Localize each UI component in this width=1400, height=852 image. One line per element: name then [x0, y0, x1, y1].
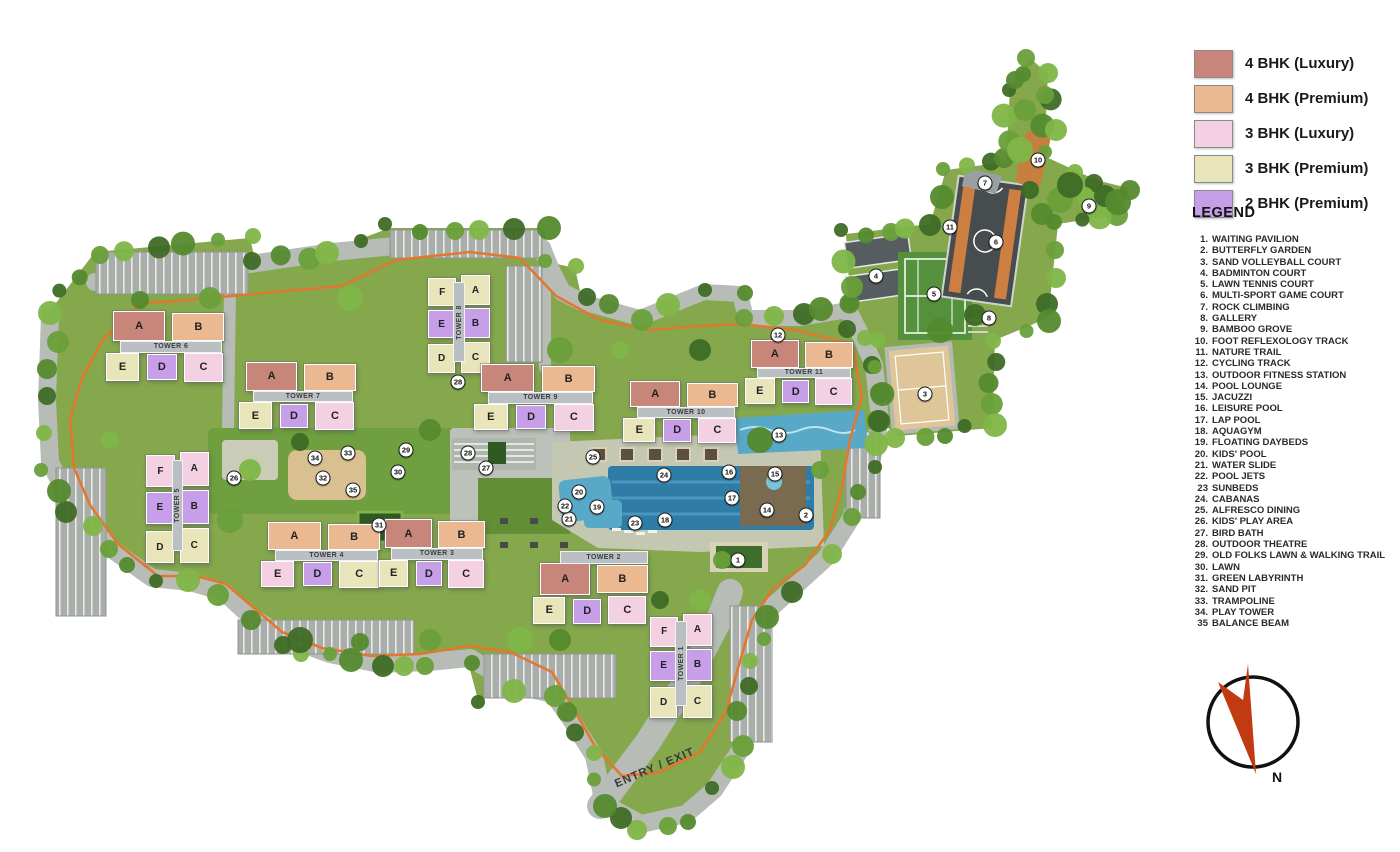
legend-item: 12.CYCLING TRACK	[1188, 358, 1385, 369]
unit-block: D	[573, 599, 601, 624]
tower-tower-9: ABEDCTOWER 9	[481, 364, 598, 430]
unit-block: D	[416, 561, 442, 586]
unit-block: B	[597, 565, 647, 594]
legend-title: LEGEND	[1192, 205, 1255, 221]
legend-swatch-row: 3 BHK (Premium)	[1194, 155, 1368, 182]
tower-name-band: TOWER 11	[757, 368, 851, 379]
unit-block: D	[663, 419, 691, 442]
legend-item: 2.BUTTERFLY GARDEN	[1188, 245, 1385, 256]
unit-block: E	[428, 310, 455, 338]
unit-block: D	[650, 687, 677, 718]
map-marker-27: 27	[479, 461, 494, 476]
unit-block: A	[385, 519, 432, 548]
legend-item: 1.WAITING PAVILION	[1188, 234, 1385, 245]
map-marker-7: 7	[978, 176, 993, 191]
tower-name-band: TOWER 10	[637, 407, 736, 418]
unit-block: E	[261, 561, 294, 587]
map-overlay: ABEDCTOWER 6ABEDCTOWER 7FAEBDCTOWER 8ABE…	[0, 0, 1150, 852]
unit-block: B	[687, 383, 737, 408]
map-marker-14: 14	[760, 503, 775, 518]
unit-block: D	[428, 344, 455, 373]
unit-block: A	[461, 275, 490, 305]
tower-tower-7: ABEDCTOWER 7	[246, 362, 358, 429]
map-marker-15: 15	[768, 467, 783, 482]
legend-item: 32.SAND PIT	[1188, 584, 1385, 595]
unit-block: A	[751, 340, 799, 368]
map-marker-20: 20	[572, 485, 587, 500]
tower-tower-8: FAEBDCTOWER 8	[428, 275, 488, 375]
legend-item: 35BALANCE BEAM	[1188, 618, 1385, 629]
unit-block: C	[184, 353, 224, 382]
swatch-label: 2 BHK (Premium)	[1245, 195, 1368, 212]
map-marker-19: 19	[590, 500, 605, 515]
map-marker-28: 28	[461, 446, 476, 461]
legend-item: 27.BIRD BATH	[1188, 528, 1385, 539]
unit-block: A	[630, 381, 680, 407]
tower-tower-5: FAEBDCTOWER 5	[146, 452, 207, 566]
legend-item: 9.BAMBOO GROVE	[1188, 324, 1385, 335]
legend-item: 22.POOL JETS	[1188, 471, 1385, 482]
unit-block: E	[239, 402, 271, 429]
unit-block: C	[554, 404, 595, 431]
map-marker-5: 5	[927, 287, 942, 302]
legend-swatch-row: 4 BHK (Luxury)	[1194, 50, 1368, 77]
unit-block: A	[113, 311, 165, 341]
map-marker-25: 25	[586, 450, 601, 465]
tower-tower-2: ABEDCTOWER 2	[540, 551, 650, 623]
legend-item: 26.KIDS' PLAY AREA	[1188, 516, 1385, 527]
tower-name-band: TOWER 3	[391, 548, 483, 560]
map-marker-26: 26	[227, 471, 242, 486]
unit-block: B	[805, 342, 853, 368]
unit-block: C	[698, 418, 736, 443]
legend-item: 33.TRAMPOLINE	[1188, 596, 1385, 607]
unit-block: A	[246, 362, 297, 391]
map-marker-17: 17	[725, 491, 740, 506]
unit-block: B	[304, 364, 355, 391]
map-marker-31: 31	[372, 518, 387, 533]
legend-item: 15.JACUZZI	[1188, 392, 1385, 403]
unit-block: E	[146, 492, 174, 524]
legend-item: 5.LAWN TENNIS COURT	[1188, 279, 1385, 290]
tower-name-band: TOWER 2	[560, 551, 648, 564]
map-marker-29: 29	[399, 443, 414, 458]
map-marker-21: 21	[562, 512, 577, 527]
tower-name-band: TOWER 1	[675, 621, 687, 706]
legend-item: 14.POOL LOUNGE	[1188, 381, 1385, 392]
unit-block: A	[180, 452, 209, 486]
unit-block: A	[481, 364, 534, 392]
swatch-label: 4 BHK (Luxury)	[1245, 55, 1354, 72]
unit-block: F	[650, 617, 678, 647]
swatch-color	[1194, 120, 1233, 148]
tower-name-band: TOWER 5	[172, 460, 184, 551]
legend-item: 28.OUTDOOR THEATRE	[1188, 539, 1385, 550]
map-marker-28: 28	[451, 375, 466, 390]
map-marker-3: 3	[918, 387, 933, 402]
map-marker-16: 16	[722, 465, 737, 480]
map-marker-6: 6	[989, 235, 1004, 250]
north-label: N	[1272, 769, 1282, 785]
site-plan-page: ABEDCTOWER 6ABEDCTOWER 7FAEBDCTOWER 8ABE…	[0, 0, 1400, 852]
unit-block: C	[448, 560, 484, 588]
unit-block: C	[815, 378, 851, 404]
unit-block: D	[147, 354, 176, 380]
map-marker-10: 10	[1031, 153, 1046, 168]
tower-tower-10: ABEDCTOWER 10	[630, 381, 740, 442]
swatch-label: 4 BHK (Premium)	[1245, 90, 1368, 107]
map-marker-9: 9	[1082, 199, 1097, 214]
legend-swatch-row: 4 BHK (Premium)	[1194, 85, 1368, 112]
map-marker-12: 12	[771, 328, 786, 343]
map-marker-13: 13	[772, 428, 787, 443]
legend-item: 23SUNBEDS	[1188, 483, 1385, 494]
unit-block: C	[180, 528, 209, 563]
legend-item: 34.PLAY TOWER	[1188, 607, 1385, 618]
unit-block: D	[280, 404, 309, 429]
unit-block: A	[268, 522, 321, 550]
unit-block: B	[461, 308, 490, 338]
legend-item: 24.CABANAS	[1188, 494, 1385, 505]
unit-block: E	[533, 597, 565, 623]
legend-item: 21.WATER SLIDE	[1188, 460, 1385, 471]
legend-item: 8.GALLERY	[1188, 313, 1385, 324]
unit-block: C	[339, 561, 379, 588]
unit-block: C	[608, 596, 646, 624]
unit-block: B	[542, 366, 595, 392]
legend-item: 10.FOOT REFLEXOLOGY TRACK	[1188, 336, 1385, 347]
tower-name-band: TOWER 6	[120, 341, 222, 353]
map-marker-32: 32	[316, 471, 331, 486]
map-marker-35: 35	[346, 483, 361, 498]
unit-block: E	[474, 404, 508, 430]
unit-block: E	[106, 353, 139, 381]
swatch-color	[1194, 50, 1233, 78]
unit-block: C	[683, 685, 712, 718]
legend-item: 4.BADMINTON COURT	[1188, 268, 1385, 279]
unit-block: E	[650, 651, 677, 681]
tower-tower-3: ABEDCTOWER 3	[385, 519, 487, 587]
legend-item: 7.ROCK CLIMBING	[1188, 302, 1385, 313]
unit-block: B	[683, 649, 712, 681]
legend-item: 6.MULTI-SPORT GAME COURT	[1188, 290, 1385, 301]
swatch-color	[1194, 85, 1233, 113]
legend-item: 20.KIDS' POOL	[1188, 449, 1385, 460]
map-marker-11: 11	[943, 220, 958, 235]
legend-item: 3.SAND VOLLEYBALL COURT	[1188, 257, 1385, 268]
unit-block: B	[180, 490, 209, 524]
swatch-label: 3 BHK (Luxury)	[1245, 125, 1354, 142]
unit-block: E	[745, 378, 775, 404]
unit-block: E	[623, 418, 655, 443]
unit-block: D	[303, 562, 333, 586]
legend-item: 29.OLD FOLKS LAWN & WALKING TRAIL	[1188, 550, 1385, 561]
tower-name-band: TOWER 9	[488, 392, 593, 403]
unit-block: C	[315, 402, 354, 429]
unit-block: B	[438, 521, 485, 548]
map-marker-1: 1	[731, 553, 746, 568]
tower-name-band: TOWER 7	[253, 391, 354, 402]
swatch-label: 3 BHK (Premium)	[1245, 160, 1368, 177]
tower-name-band: TOWER 8	[453, 282, 465, 362]
legend-item: 31.GREEN LABYRINTH	[1188, 573, 1385, 584]
unit-block: D	[782, 380, 809, 404]
legend-item: 30.LAWN	[1188, 562, 1385, 573]
legend-item: 19.FLOATING DAYBEDS	[1188, 437, 1385, 448]
unit-type-legend: 4 BHK (Luxury)4 BHK (Premium)3 BHK (Luxu…	[1194, 50, 1368, 225]
map-marker-23: 23	[628, 516, 643, 531]
legend-item: 13.OUTDOOR FITNESS STATION	[1188, 370, 1385, 381]
unit-block: F	[146, 455, 175, 487]
map-marker-24: 24	[657, 468, 672, 483]
map-marker-22: 22	[558, 499, 573, 514]
map-marker-34: 34	[308, 451, 323, 466]
unit-block: D	[516, 405, 546, 429]
tower-tower-6: ABEDCTOWER 6	[113, 311, 227, 381]
unit-block: E	[379, 560, 409, 587]
map-marker-2: 2	[799, 508, 814, 523]
map-marker-8: 8	[982, 311, 997, 326]
swatch-color	[1194, 155, 1233, 183]
map-marker-30: 30	[391, 465, 406, 480]
north-compass: N	[1198, 660, 1308, 792]
legend-item: 16.LEISURE POOL	[1188, 403, 1385, 414]
unit-block: B	[172, 313, 224, 341]
unit-block: A	[540, 563, 590, 595]
tower-tower-1: FAEBDCTOWER 1	[650, 614, 710, 720]
unit-block: F	[428, 278, 456, 306]
legend-item: 25.ALFRESCO DINING	[1188, 505, 1385, 516]
unit-block: D	[146, 531, 174, 564]
legend-swatch-row: 3 BHK (Luxury)	[1194, 120, 1368, 147]
legend-item: 18.AQUAGYM	[1188, 426, 1385, 437]
map-marker-18: 18	[658, 513, 673, 528]
legend-item: 17.LAP POOL	[1188, 415, 1385, 426]
legend-items: 1.WAITING PAVILION2.BUTTERFLY GARDEN3.SA…	[1188, 234, 1385, 629]
tower-tower-4: ABEDCTOWER 4	[268, 522, 383, 587]
legend-item: 11.NATURE TRAIL	[1188, 347, 1385, 358]
tower-tower-11: ABEDCTOWER 11	[751, 340, 855, 404]
unit-block: A	[683, 614, 712, 646]
map-marker-4: 4	[869, 269, 884, 284]
tower-name-band: TOWER 4	[275, 550, 378, 561]
map-marker-33: 33	[341, 446, 356, 461]
